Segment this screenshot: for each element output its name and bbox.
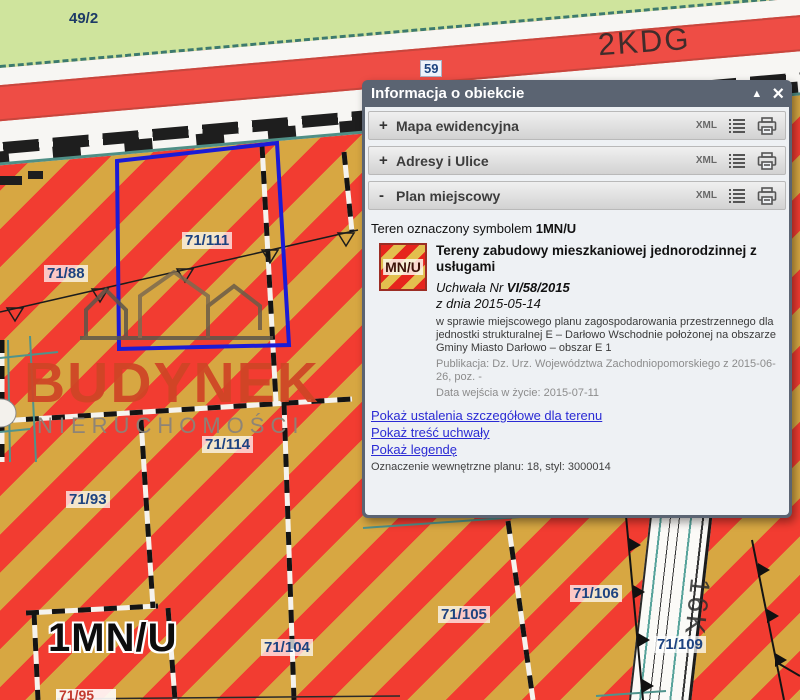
parcel-label-partial: 71/95: [56, 689, 116, 700]
accordion-plan-miejscowy[interactable]: - Plan miejscowy XML: [368, 181, 786, 210]
map-canvas[interactable]: 49/2 59 2KDG 71/88 71/111 71/114 71/93 7…: [0, 0, 800, 700]
list-icon[interactable]: [728, 118, 746, 133]
plan-internal-note: Oznaczenie wewnętrzne planu: 18, styl: 3…: [371, 461, 783, 473]
section-label: Plan miejscowy: [396, 188, 500, 204]
land-use-title: Tereny zabudowy mieszkaniowej jednorodzi…: [436, 243, 783, 275]
parcel-label-71-109: 71/109: [654, 636, 706, 653]
watermark-subtitle: NIERUCHOMOŚCI: [37, 413, 304, 439]
collapse-section-icon[interactable]: -: [379, 187, 396, 204]
parcel-label-71-106: 71/106: [570, 585, 622, 602]
parcel-label-partial-text: 71/95: [59, 689, 94, 700]
link-show-resolution-text[interactable]: Pokaż treść uchwały: [371, 424, 783, 441]
zone-label-16k: 16K: [678, 577, 716, 639]
popup-titlebar[interactable]: Informacja o obiekcie ▲ ×: [362, 80, 792, 107]
resolution-date: z dnia 2015-05-14: [436, 296, 783, 312]
plan-intro: Teren oznaczony symbolem 1MN/U: [371, 221, 783, 236]
plan-intro-prefix: Teren oznaczony symbolem: [371, 221, 536, 236]
print-icon[interactable]: [757, 187, 777, 205]
resolution-prefix: Uchwała Nr: [436, 280, 507, 295]
list-icon[interactable]: [728, 153, 746, 168]
popup-title: Informacja o obiekcie: [371, 85, 751, 102]
watermark-title: BUDYNEK: [24, 350, 320, 416]
parcel-label-71-104: 71/104: [261, 639, 313, 656]
zone-swatch-label: MN/U: [383, 259, 423, 275]
watermark-house-icon: [78, 270, 278, 345]
section-label: Mapa ewidencyjna: [396, 118, 519, 134]
parcel-label-71-93: 71/93: [66, 491, 110, 508]
popup-body: + Mapa ewidencyjna XML + Adresy i Ulice …: [365, 107, 789, 515]
parcel-label-49-2: 49/2: [66, 10, 101, 27]
collapse-icon[interactable]: ▲: [751, 88, 762, 100]
info-popup: Informacja o obiekcie ▲ × + Mapa ewidenc…: [362, 80, 792, 518]
close-icon[interactable]: ×: [772, 85, 784, 103]
parcel-label-71-114: 71/114: [202, 436, 253, 453]
plan-symbol: 1MN/U: [536, 221, 576, 236]
xml-button[interactable]: XML: [696, 155, 717, 166]
plan-description: w sprawie miejscowego planu zagospodarow…: [436, 316, 783, 355]
resolution-id: VI/58/2015: [507, 280, 570, 295]
list-icon[interactable]: [728, 188, 746, 203]
road-number-label: 59: [420, 60, 442, 77]
expand-icon[interactable]: +: [379, 152, 396, 169]
section-label: Adresy i Ulice: [396, 153, 489, 169]
zone-label-2kdg: 2KDG: [597, 21, 692, 63]
accordion-mapa-ewidencyjna[interactable]: + Mapa ewidencyjna XML: [368, 111, 786, 140]
expand-icon[interactable]: +: [379, 117, 396, 134]
xml-button[interactable]: XML: [696, 190, 717, 201]
plan-section-content: Teren oznaczony symbolem 1MN/U MN/U Tere…: [367, 216, 787, 475]
plan-publication: Publikacja: Dz. Urz. Województwa Zachodn…: [436, 358, 783, 384]
resolution-number: Uchwała Nr VI/58/2015: [436, 280, 783, 296]
parcel-label-71-88: 71/88: [44, 265, 88, 282]
plan-links: Pokaż ustalenia szczegółowe dla terenu P…: [371, 407, 783, 458]
plan-effective-date: Data wejścia w życie: 2015-07-11: [436, 387, 783, 400]
parcel-label-71-111: 71/111: [182, 232, 232, 249]
zone-swatch: MN/U: [379, 243, 427, 291]
link-show-detailed-settings[interactable]: Pokaż ustalenia szczegółowe dla terenu: [371, 407, 783, 424]
print-icon[interactable]: [757, 152, 777, 170]
accordion-adresy-ulice[interactable]: + Adresy i Ulice XML: [368, 146, 786, 175]
link-show-legend[interactable]: Pokaż legendę: [371, 441, 783, 458]
parcel-label-71-105: 71/105: [438, 606, 490, 623]
xml-button[interactable]: XML: [696, 120, 717, 131]
print-icon[interactable]: [757, 117, 777, 135]
zone-label-1mnu: 1MN/U: [48, 616, 177, 661]
